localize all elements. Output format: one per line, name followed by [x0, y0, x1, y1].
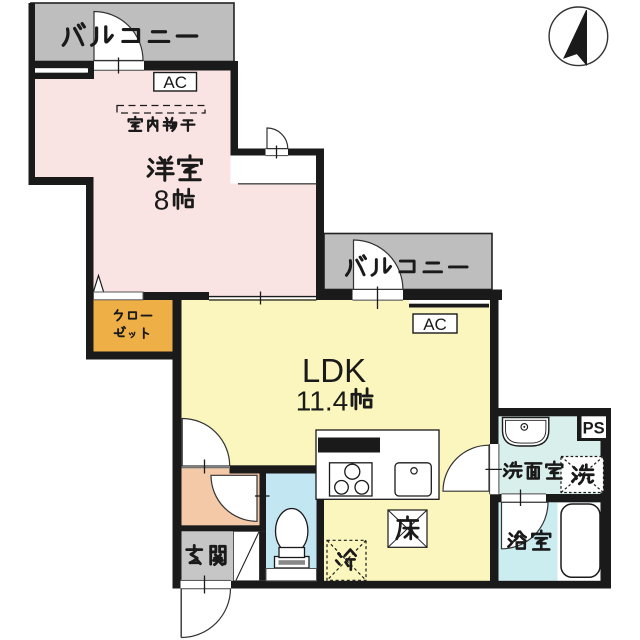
svg-text:AC: AC — [163, 73, 187, 92]
svg-text:AC: AC — [423, 315, 447, 334]
svg-text:11.4: 11.4 — [296, 386, 348, 417]
svg-text:PS: PS — [583, 420, 605, 438]
svg-text:8: 8 — [154, 185, 170, 216]
svg-text:LDK: LDK — [302, 352, 366, 389]
